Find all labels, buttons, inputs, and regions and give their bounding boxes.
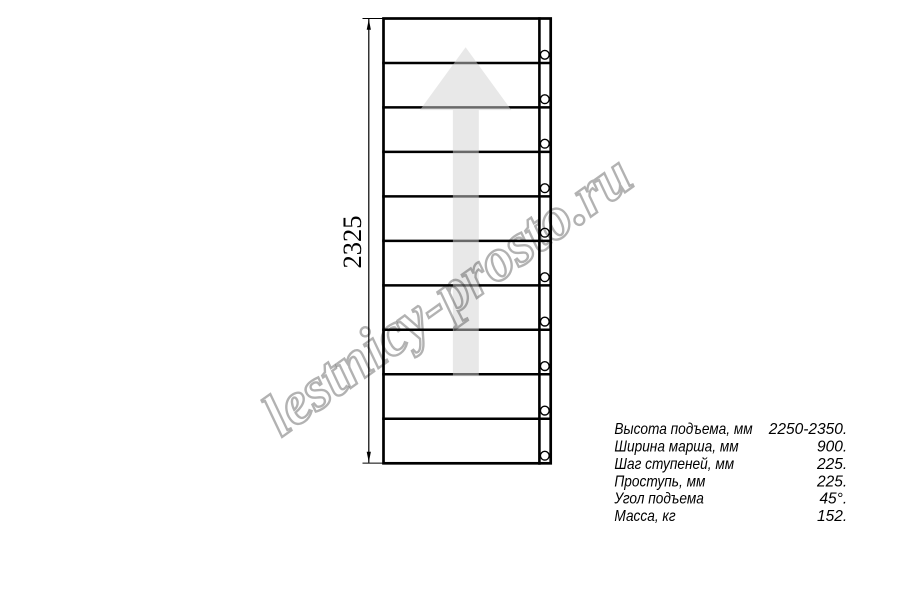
svg-text:Высота подъема, мм: Высота подъема, мм [614, 421, 752, 438]
svg-text:Угол подъема: Угол подъема [613, 491, 703, 508]
svg-text:lestnicy-prosto.ru: lestnicy-prosto.ru [250, 141, 644, 449]
svg-text:225.: 225. [816, 473, 847, 490]
svg-text:Масса, кг: Масса, кг [614, 508, 675, 525]
svg-text:900.: 900. [817, 439, 847, 456]
svg-text:Ширина марша, мм: Ширина марша, мм [614, 439, 738, 456]
svg-text:225.: 225. [816, 456, 847, 473]
svg-text:152.: 152. [817, 508, 847, 525]
svg-text:2250-2350.: 2250-2350. [768, 421, 847, 438]
svg-text:Шаг ступеней, мм: Шаг ступеней, мм [614, 456, 734, 473]
svg-text:2325: 2325 [337, 216, 367, 269]
svg-text:Проступь, мм: Проступь, мм [614, 473, 705, 490]
svg-text:45°.: 45°. [819, 491, 847, 508]
